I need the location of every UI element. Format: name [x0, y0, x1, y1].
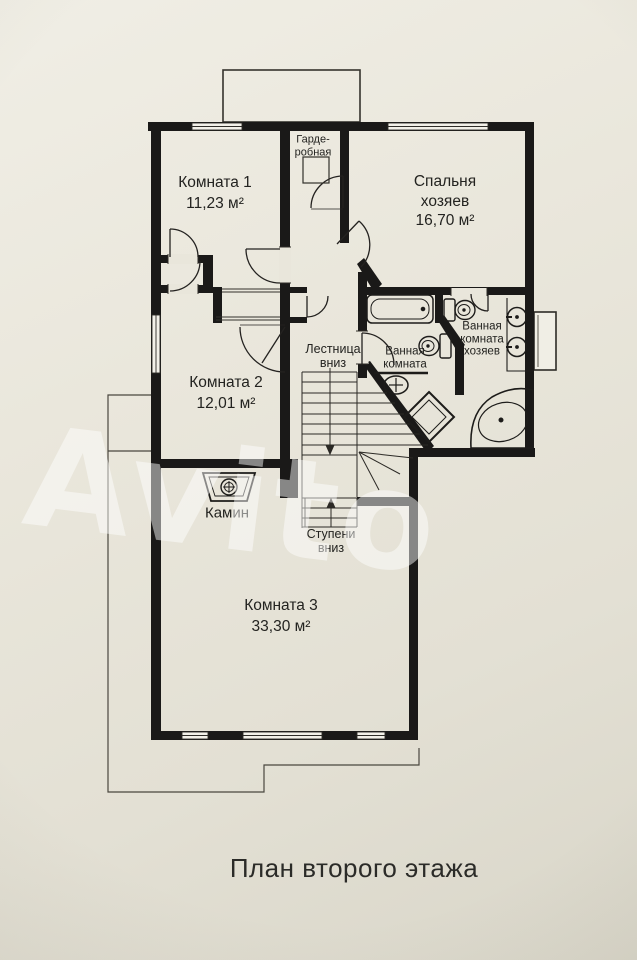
room2-label: Комната 2 12,01 м²: [189, 372, 263, 414]
wall-bath-top: [358, 287, 534, 295]
room1-label: Комната 1 11,23 м²: [178, 172, 252, 214]
wall-left: [151, 122, 161, 740]
window-top-1: [192, 123, 242, 130]
fireplace: [203, 473, 255, 501]
wall-wardrobe-east: [340, 131, 349, 243]
bathroom-label: Ванная комната: [383, 346, 427, 371]
stairs-label-1: Лестница: [305, 342, 360, 356]
window-bottom-2: [243, 732, 322, 739]
bathroom-label-2: комната: [383, 358, 427, 371]
steps-label-1: Ступени: [307, 527, 356, 541]
fireplace-label: Камин: [205, 505, 249, 524]
page-title: План второго этажа: [230, 852, 478, 885]
bathroom-label-1: Ванная: [383, 346, 427, 359]
wall-room2-bottom: [151, 459, 298, 468]
room3-name: Комната 3: [244, 595, 318, 616]
stairs-label-2: вниз: [305, 356, 360, 370]
master-bedroom-area: 16,70 м²: [414, 211, 476, 231]
master-bathroom-label: Ванная комната хозяев: [460, 320, 504, 358]
wardrobe-label: Гарде- робная: [295, 134, 332, 159]
master-bedroom-label: Спальня хозяев 16,70 м²: [414, 172, 476, 231]
wall-vestibule-a: [151, 255, 168, 263]
door-room1-south: [170, 229, 198, 257]
stairs-down-arrow: [326, 368, 334, 454]
wall-stair-bottom: [357, 497, 418, 506]
window-left: [152, 315, 160, 373]
walls: [148, 122, 535, 740]
door-wardrobe: [311, 176, 343, 209]
wall-closet-stub: [213, 287, 222, 323]
master-bedroom-name-1: Спальня: [414, 172, 476, 192]
door-hall-closet: [307, 296, 328, 317]
window-bottom-1: [182, 732, 208, 739]
wall-vestibule-b: [151, 285, 168, 293]
steps-label: Ступени вниз: [307, 527, 356, 555]
steps-label-2: вниз: [307, 541, 356, 555]
floor-plan-photo: Комната 1 11,23 м² Спальня хозяев 16,70 …: [0, 0, 637, 960]
fireplace-label-text: Камин: [205, 505, 249, 524]
master-bathroom-label-1: Ванная: [460, 320, 504, 333]
window-bottom-3: [357, 732, 385, 739]
room3-area: 33,30 м²: [244, 616, 318, 637]
door-room2: [240, 325, 285, 372]
wardrobe-label-2: робная: [295, 146, 332, 159]
door-hall-room1: [246, 249, 280, 283]
window-top-2: [388, 123, 488, 130]
wall-hall-east: [358, 272, 367, 331]
door-master-bathroom: [471, 294, 488, 311]
master-bathroom-label-2: комната: [460, 333, 504, 346]
room2-name: Комната 2: [189, 372, 263, 393]
wall-right-lower: [409, 448, 418, 740]
room1-area: 11,23 м²: [178, 193, 252, 214]
room2-area: 12,01 м²: [189, 393, 263, 414]
wall-diagonal-1: [363, 361, 434, 453]
wall-hall-west: [280, 131, 290, 498]
wardrobe-label-1: Гарде-: [295, 134, 332, 147]
bathtub: [367, 295, 433, 323]
stairs-label: Лестница вниз: [305, 342, 360, 370]
steps-small: [302, 498, 357, 527]
toilet-master: [444, 299, 475, 321]
top-bumpout-outline: [223, 70, 360, 122]
room3-label: Комната 3 33,30 м²: [244, 595, 318, 637]
page-title-text: План второго этажа: [230, 852, 478, 885]
bay-window: [534, 312, 556, 370]
wardrobe-cabinet: [303, 157, 329, 183]
room1-name: Комната 1: [178, 172, 252, 193]
corner-bathtub: [471, 389, 533, 448]
master-bedroom-name-2: хозяев: [414, 191, 476, 211]
master-bathroom-label-3: хозяев: [460, 345, 504, 358]
